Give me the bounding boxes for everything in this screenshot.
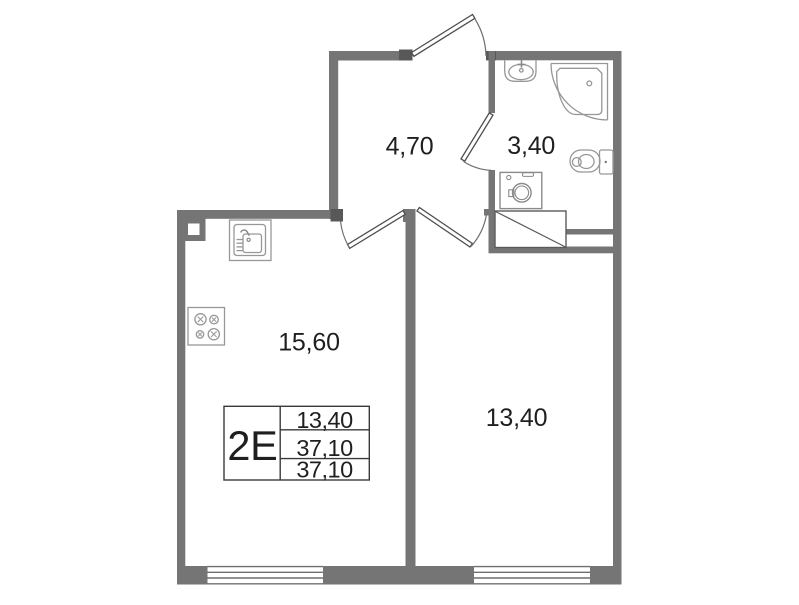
svg-text:3,40: 3,40 xyxy=(507,132,555,160)
svg-text:2E: 2E xyxy=(227,422,277,469)
svg-text:37,10: 37,10 xyxy=(296,457,353,483)
svg-text:13,40: 13,40 xyxy=(486,404,548,432)
svg-text:13,40: 13,40 xyxy=(296,407,353,433)
svg-text:15,60: 15,60 xyxy=(278,329,340,357)
svg-text:4,70: 4,70 xyxy=(386,133,434,161)
